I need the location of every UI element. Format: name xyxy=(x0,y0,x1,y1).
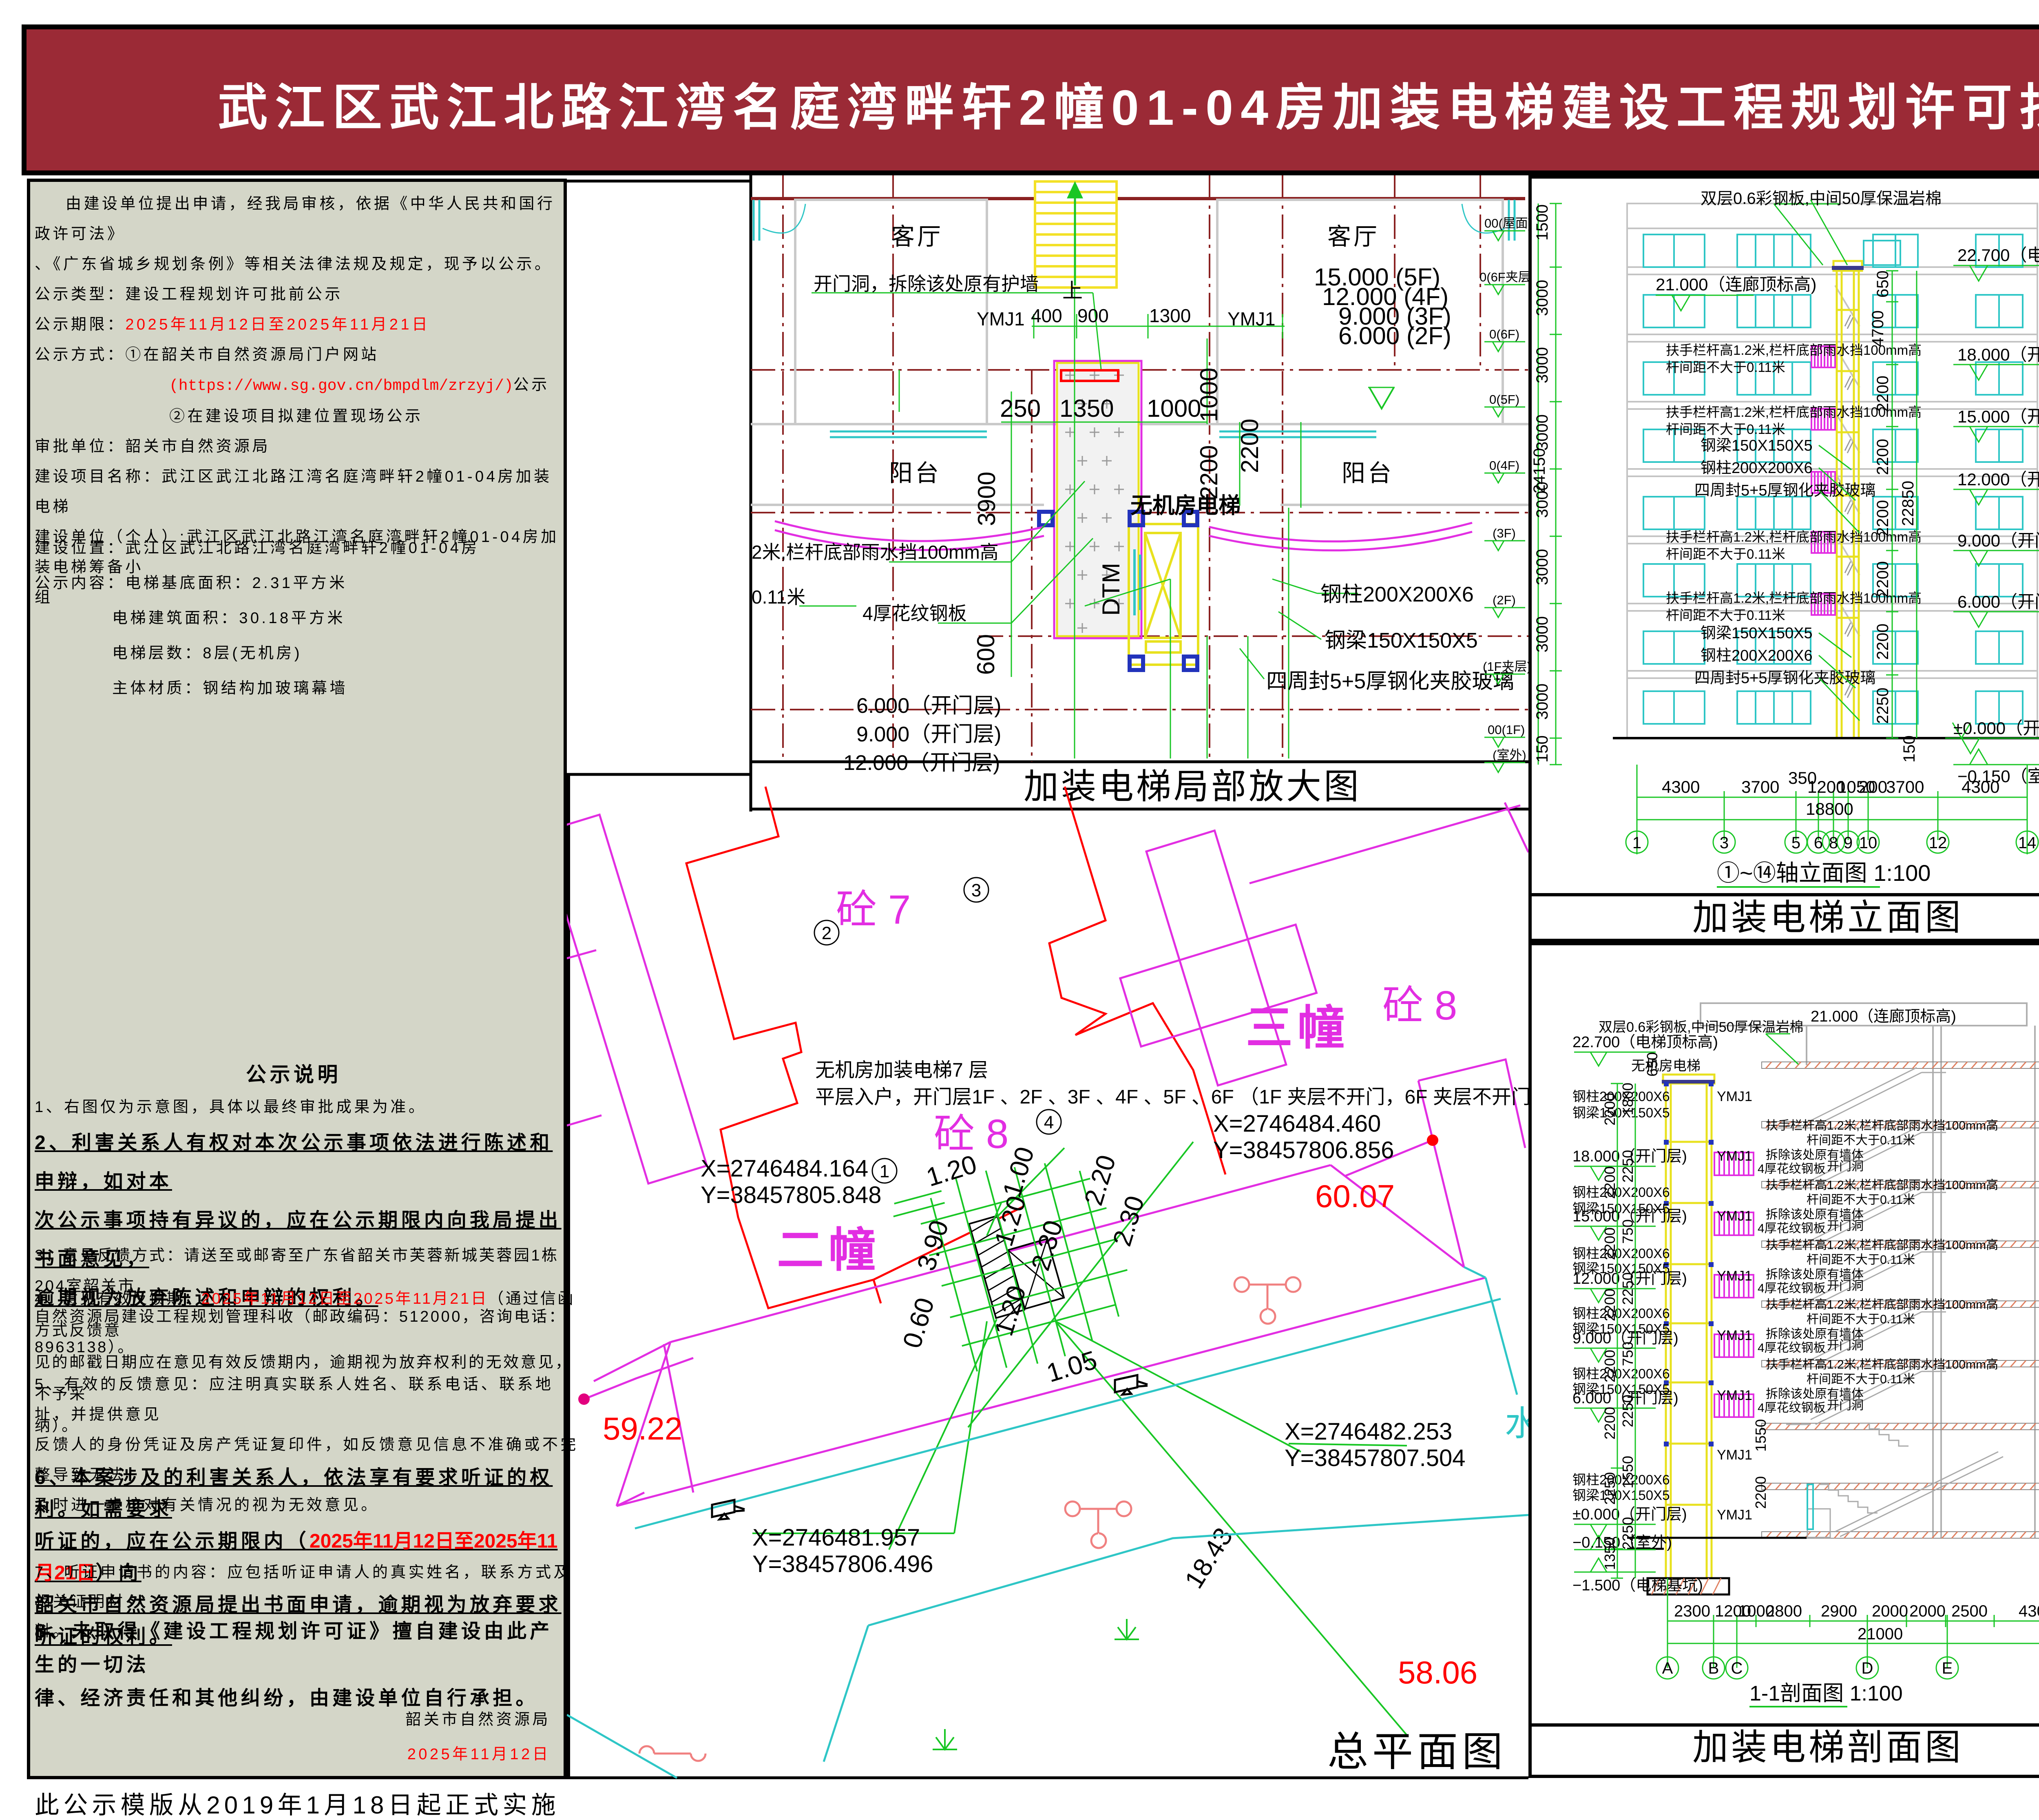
svg-text:2200: 2200 xyxy=(1601,1227,1618,1260)
svg-text:2米,栏杆底部雨水挡100mm高: 2米,栏杆底部雨水挡100mm高 xyxy=(752,542,999,563)
svg-text:2200: 2200 xyxy=(1874,500,1892,536)
svg-text:1: 1 xyxy=(1632,834,1641,852)
svg-text:(1F夹层): (1F夹层) xyxy=(1483,659,1528,674)
svg-text:1500: 1500 xyxy=(1533,204,1551,241)
svg-text:四周封5+5厚钢化夹胶玻璃: 四周封5+5厚钢化夹胶玻璃 xyxy=(1694,670,1875,687)
svg-text:X=2746484.164: X=2746484.164 xyxy=(701,1155,868,1182)
svg-text:2.30: 2.30 xyxy=(1026,1217,1068,1274)
svg-text:无机房加装电梯7 层: 无机房加装电梯7 层 xyxy=(815,1059,988,1081)
svg-text:24150: 24150 xyxy=(1530,448,1548,493)
svg-text:钢梁150X150X5: 钢梁150X150X5 xyxy=(1701,437,1813,454)
svg-text:Y=38457807.504: Y=38457807.504 xyxy=(1285,1445,1466,1471)
svg-text:2200: 2200 xyxy=(1601,1289,1618,1321)
svg-text:无机房电梯: 无机房电梯 xyxy=(1631,1058,1701,1074)
svg-text:1350: 1350 xyxy=(1059,395,1114,422)
svg-text:2.30: 2.30 xyxy=(1107,1192,1150,1249)
svg-text:砼 7: 砼 7 xyxy=(836,887,911,933)
svg-text:YMJ1: YMJ1 xyxy=(1717,1447,1752,1463)
svg-text:21000: 21000 xyxy=(1858,1625,1903,1643)
svg-text:钢梁150X150X5: 钢梁150X150X5 xyxy=(1572,1382,1670,1397)
svg-text:650: 650 xyxy=(1874,270,1892,298)
svg-text:钢梁150X150X5: 钢梁150X150X5 xyxy=(1572,1321,1670,1336)
svg-text:3900: 3900 xyxy=(973,472,1000,526)
svg-text:00(屋面): 00(屋面) xyxy=(1484,216,1528,230)
svg-text:18800: 18800 xyxy=(1806,799,1853,818)
svg-text:1: 1 xyxy=(880,1161,889,1181)
svg-text:砼 8: 砼 8 xyxy=(934,1111,1008,1157)
svg-text:±0.000（开门层): ±0.000（开门层) xyxy=(1953,719,2039,738)
svg-text:2200: 2200 xyxy=(1236,419,1263,473)
svg-text:900: 900 xyxy=(1077,305,1109,326)
svg-text:总平面图: 总平面图 xyxy=(1327,1729,1507,1775)
svg-text:D: D xyxy=(1862,1659,1873,1677)
svg-text:1000: 1000 xyxy=(1195,368,1223,422)
svg-text:(室外): (室外) xyxy=(1493,748,1526,762)
svg-text:3000: 3000 xyxy=(1533,347,1551,383)
svg-text:0(4F): 0(4F) xyxy=(1489,458,1519,473)
svg-text:2250: 2250 xyxy=(1619,1517,1636,1550)
svg-text:1350: 1350 xyxy=(1601,1537,1618,1570)
svg-text:14: 14 xyxy=(2018,834,2037,852)
svg-text:2250: 2250 xyxy=(1619,1150,1636,1183)
svg-text:22.700（电梯顶标高): 22.700（电梯顶标高) xyxy=(1572,1034,1718,1051)
svg-text:杆间距不大于0.11米: 杆间距不大于0.11米 xyxy=(1666,546,1785,562)
svg-text:650: 650 xyxy=(1644,1052,1661,1077)
svg-text:加装电梯剖面图: 加装电梯剖面图 xyxy=(1692,1727,1964,1767)
svg-text:X=2746482.253: X=2746482.253 xyxy=(1285,1418,1452,1445)
svg-text:Y=38457805.848: Y=38457805.848 xyxy=(701,1182,882,1208)
svg-text:开门洞，拆除该处原有护墙: 开门洞，拆除该处原有护墙 xyxy=(814,273,1039,294)
svg-text:2000: 2000 xyxy=(1872,1602,1908,1620)
svg-text:Y=38457806.496: Y=38457806.496 xyxy=(752,1551,933,1577)
svg-text:阳台: 阳台 xyxy=(1342,460,1394,487)
svg-text:钢柱200X200X6: 钢柱200X200X6 xyxy=(1320,583,1474,606)
svg-text:上: 上 xyxy=(1062,279,1083,302)
svg-text:2250: 2250 xyxy=(1601,1472,1618,1505)
svg-text:150: 150 xyxy=(1533,735,1551,763)
svg-text:YMJ1: YMJ1 xyxy=(1717,1507,1752,1523)
svg-text:2200: 2200 xyxy=(1874,561,1892,597)
svg-text:−1.500（电梯基坑): −1.500（电梯基坑) xyxy=(1572,1577,1703,1594)
svg-text:2200: 2200 xyxy=(1601,1093,1618,1126)
svg-text:砼 8: 砼 8 xyxy=(1382,983,1457,1028)
svg-text:00(1F): 00(1F) xyxy=(1488,723,1525,737)
svg-text:1800: 1800 xyxy=(1619,1083,1636,1115)
svg-text:60.07: 60.07 xyxy=(1315,1178,1395,1214)
svg-text:三幢: 三幢 xyxy=(1246,1002,1349,1054)
svg-text:加装电梯立面图: 加装电梯立面图 xyxy=(1692,897,1964,938)
svg-text:750: 750 xyxy=(1619,1342,1636,1366)
svg-text:18.000（开门层): 18.000（开门层) xyxy=(1957,345,2039,364)
svg-text:钢柱200X200X6: 钢柱200X200X6 xyxy=(1701,460,1813,477)
svg-text:无机房电梯: 无机房电梯 xyxy=(1130,493,1241,518)
svg-text:6: 6 xyxy=(1814,834,1823,852)
svg-text:1.20: 1.20 xyxy=(989,1192,1032,1249)
svg-text:4300: 4300 xyxy=(1962,777,1999,796)
svg-text:2250: 2250 xyxy=(1874,688,1892,724)
svg-text:YMJ1: YMJ1 xyxy=(1717,1148,1752,1164)
svg-text:客厅: 客厅 xyxy=(1327,223,1380,250)
svg-text:600: 600 xyxy=(972,634,1000,675)
svg-text:59.22: 59.22 xyxy=(603,1411,682,1446)
svg-text:杆间距不大于0.11米: 杆间距不大于0.11米 xyxy=(1666,360,1785,375)
svg-text:3000: 3000 xyxy=(1533,280,1551,316)
svg-text:15.000（开门层): 15.000（开门层) xyxy=(1957,407,2039,426)
svg-text:2200: 2200 xyxy=(1601,1407,1618,1440)
svg-text:22850: 22850 xyxy=(1899,481,1917,526)
svg-text:钢柱200X200X6: 钢柱200X200X6 xyxy=(1572,1366,1670,1381)
svg-text:2800: 2800 xyxy=(1766,1602,1802,1620)
svg-text:2200: 2200 xyxy=(1874,439,1892,475)
svg-text:250: 250 xyxy=(1000,395,1041,422)
svg-text:150: 150 xyxy=(1900,735,1918,763)
svg-text:3700: 3700 xyxy=(1741,777,1779,796)
svg-text:钢柱200X200X6: 钢柱200X200X6 xyxy=(1572,1246,1670,1261)
svg-text:杆间距不大于0.11米: 杆间距不大于0.11米 xyxy=(1666,608,1785,623)
svg-text:2900: 2900 xyxy=(1821,1602,1857,1620)
svg-text:3: 3 xyxy=(1720,834,1729,852)
svg-text:钢梁150X150X5: 钢梁150X150X5 xyxy=(1701,625,1813,642)
svg-text:钢柱200X200X6: 钢柱200X200X6 xyxy=(1572,1185,1670,1200)
svg-text:5: 5 xyxy=(1791,834,1800,852)
svg-text:钢梁150X150X5: 钢梁150X150X5 xyxy=(1325,629,1478,652)
svg-text:①~⑭轴立面图 1:100: ①~⑭轴立面图 1:100 xyxy=(1717,860,1931,886)
svg-text:4: 4 xyxy=(1044,1112,1054,1132)
svg-text:12: 12 xyxy=(1929,834,1947,852)
svg-text:2: 2 xyxy=(822,923,832,943)
svg-text:4300: 4300 xyxy=(2019,1602,2039,1620)
svg-text:YMJ1: YMJ1 xyxy=(1227,308,1276,330)
svg-text:22.700（电梯顶标高): 22.700（电梯顶标高) xyxy=(1957,245,2039,265)
svg-text:0.11米: 0.11米 xyxy=(752,586,805,608)
svg-text:B: B xyxy=(1708,1659,1719,1677)
svg-text:0.60: 0.60 xyxy=(897,1294,940,1351)
svg-text:(3F): (3F) xyxy=(1493,526,1516,540)
svg-text:A: A xyxy=(1662,1659,1673,1677)
svg-text:杆间距不大于0.11米: 杆间距不大于0.11米 xyxy=(1666,422,1785,437)
svg-text:2200: 2200 xyxy=(1601,1350,1618,1382)
svg-text:平层入户，开门层1F 、2F 、3F 、4F 、5F 、6F: 平层入户，开门层1F 、2F 、3F 、4F 、5F 、6F （1F 夹层不开门… xyxy=(815,1086,1528,1108)
svg-text:2300: 2300 xyxy=(1674,1602,1710,1620)
svg-text:钢柱200X200X6: 钢柱200X200X6 xyxy=(1572,1306,1670,1321)
svg-text:3000: 3000 xyxy=(1533,414,1551,451)
svg-text:200: 200 xyxy=(1859,777,1887,796)
svg-text:21.000（连廊顶标高): 21.000（连廊顶标高) xyxy=(1656,275,1816,294)
svg-text:4300: 4300 xyxy=(1662,777,1700,796)
svg-text:18.43: 18.43 xyxy=(1179,1522,1238,1593)
svg-text:2200: 2200 xyxy=(1874,376,1892,412)
svg-text:双层0.6彩钢板,中间50厚保温岩棉: 双层0.6彩钢板,中间50厚保温岩棉 xyxy=(1599,1019,1804,1035)
svg-text:9.000（开门层): 9.000（开门层) xyxy=(856,723,1001,746)
svg-text:阳台: 阳台 xyxy=(889,460,941,487)
svg-text:2250: 2250 xyxy=(1619,1395,1636,1427)
svg-text:21.000（连廊顶标高): 21.000（连廊顶标高) xyxy=(1811,1008,1956,1025)
svg-text:2000: 2000 xyxy=(1909,1602,1946,1620)
svg-text:2200: 2200 xyxy=(1874,624,1892,660)
svg-text:双层0.6彩钢板,中间50厚保温岩棉: 双层0.6彩钢板,中间50厚保温岩棉 xyxy=(1701,190,1942,208)
svg-text:3000: 3000 xyxy=(1533,683,1551,720)
svg-text:4厚花纹钢板: 4厚花纹钢板 xyxy=(862,603,967,624)
svg-text:YMJ1: YMJ1 xyxy=(1717,1268,1752,1284)
svg-text:Y=38457806.856: Y=38457806.856 xyxy=(1213,1137,1394,1163)
svg-text:C: C xyxy=(1731,1659,1743,1677)
svg-text:X=2746481.957: X=2746481.957 xyxy=(752,1524,920,1551)
svg-text:6.000（开门层): 6.000（开门层) xyxy=(856,694,1001,718)
svg-text:6.000 (2F): 6.000 (2F) xyxy=(1338,322,1451,349)
svg-text:1000: 1000 xyxy=(1147,395,1201,422)
svg-text:E: E xyxy=(1942,1659,1953,1677)
svg-text:钢柱200X200X6: 钢柱200X200X6 xyxy=(1701,647,1813,664)
svg-text:1-1剖面图 1:100: 1-1剖面图 1:100 xyxy=(1749,1682,1903,1705)
svg-text:(2F): (2F) xyxy=(1493,593,1516,607)
svg-text:0(5F): 0(5F) xyxy=(1489,392,1519,407)
svg-text:2250: 2250 xyxy=(1619,1272,1636,1305)
svg-text:6.000（开门层): 6.000（开门层) xyxy=(1957,592,2039,611)
svg-text:2500: 2500 xyxy=(1951,1602,1988,1620)
svg-text:1550: 1550 xyxy=(1619,1456,1636,1488)
svg-text:0(6F): 0(6F) xyxy=(1489,327,1519,341)
svg-text:3000: 3000 xyxy=(1533,549,1551,585)
svg-text:58.06: 58.06 xyxy=(1398,1654,1477,1690)
svg-text:10: 10 xyxy=(1859,834,1878,852)
svg-text:二幢: 二幢 xyxy=(777,1224,880,1276)
svg-text:9: 9 xyxy=(1844,834,1853,852)
svg-text:YMJ1: YMJ1 xyxy=(1717,1089,1752,1104)
svg-text:4700: 4700 xyxy=(1869,310,1887,347)
svg-text:1300: 1300 xyxy=(1149,305,1191,326)
svg-text:3: 3 xyxy=(971,880,981,900)
svg-text:四周封5+5厚钢化夹胶玻璃: 四周封5+5厚钢化夹胶玻璃 xyxy=(1266,670,1514,693)
svg-text:1550: 1550 xyxy=(1752,1419,1769,1452)
svg-text:0(6F夹层): 0(6F夹层) xyxy=(1479,270,1528,284)
svg-text:钢梁150X150X5: 钢梁150X150X5 xyxy=(1572,1488,1670,1503)
svg-text:12.000（开门层): 12.000（开门层) xyxy=(1957,470,2039,489)
svg-text:3000: 3000 xyxy=(1533,616,1551,652)
svg-text:8: 8 xyxy=(1829,834,1838,852)
svg-text:400: 400 xyxy=(1031,305,1062,326)
svg-text:3700: 3700 xyxy=(1886,777,1924,796)
svg-text:3.90: 3.90 xyxy=(911,1217,954,1274)
svg-text:YMJ1: YMJ1 xyxy=(1717,1388,1752,1403)
svg-text:YMJ1: YMJ1 xyxy=(977,308,1025,330)
svg-text:9.000（开门层): 9.000（开门层) xyxy=(1957,531,2039,550)
svg-text:2.20: 2.20 xyxy=(1079,1152,1121,1209)
svg-text:客厅: 客厅 xyxy=(891,223,943,250)
svg-text:钢梁150X150X5: 钢梁150X150X5 xyxy=(1572,1201,1670,1216)
svg-text:水: 水 xyxy=(1505,1404,1528,1443)
svg-text:2200: 2200 xyxy=(1195,445,1223,500)
svg-text:DTM: DTM xyxy=(1097,563,1125,616)
svg-text:750: 750 xyxy=(1619,1219,1636,1244)
svg-text:12.000（开门层): 12.000（开门层) xyxy=(843,751,1000,775)
svg-text:四周封5+5厚钢化夹胶玻璃: 四周封5+5厚钢化夹胶玻璃 xyxy=(1694,482,1875,499)
svg-text:2200: 2200 xyxy=(1601,1166,1618,1199)
svg-text:YMJ1: YMJ1 xyxy=(1717,1328,1752,1343)
svg-text:2200: 2200 xyxy=(1752,1476,1769,1509)
svg-text:X=2746484.460: X=2746484.460 xyxy=(1213,1110,1381,1137)
svg-text:YMJ1: YMJ1 xyxy=(1717,1208,1752,1224)
